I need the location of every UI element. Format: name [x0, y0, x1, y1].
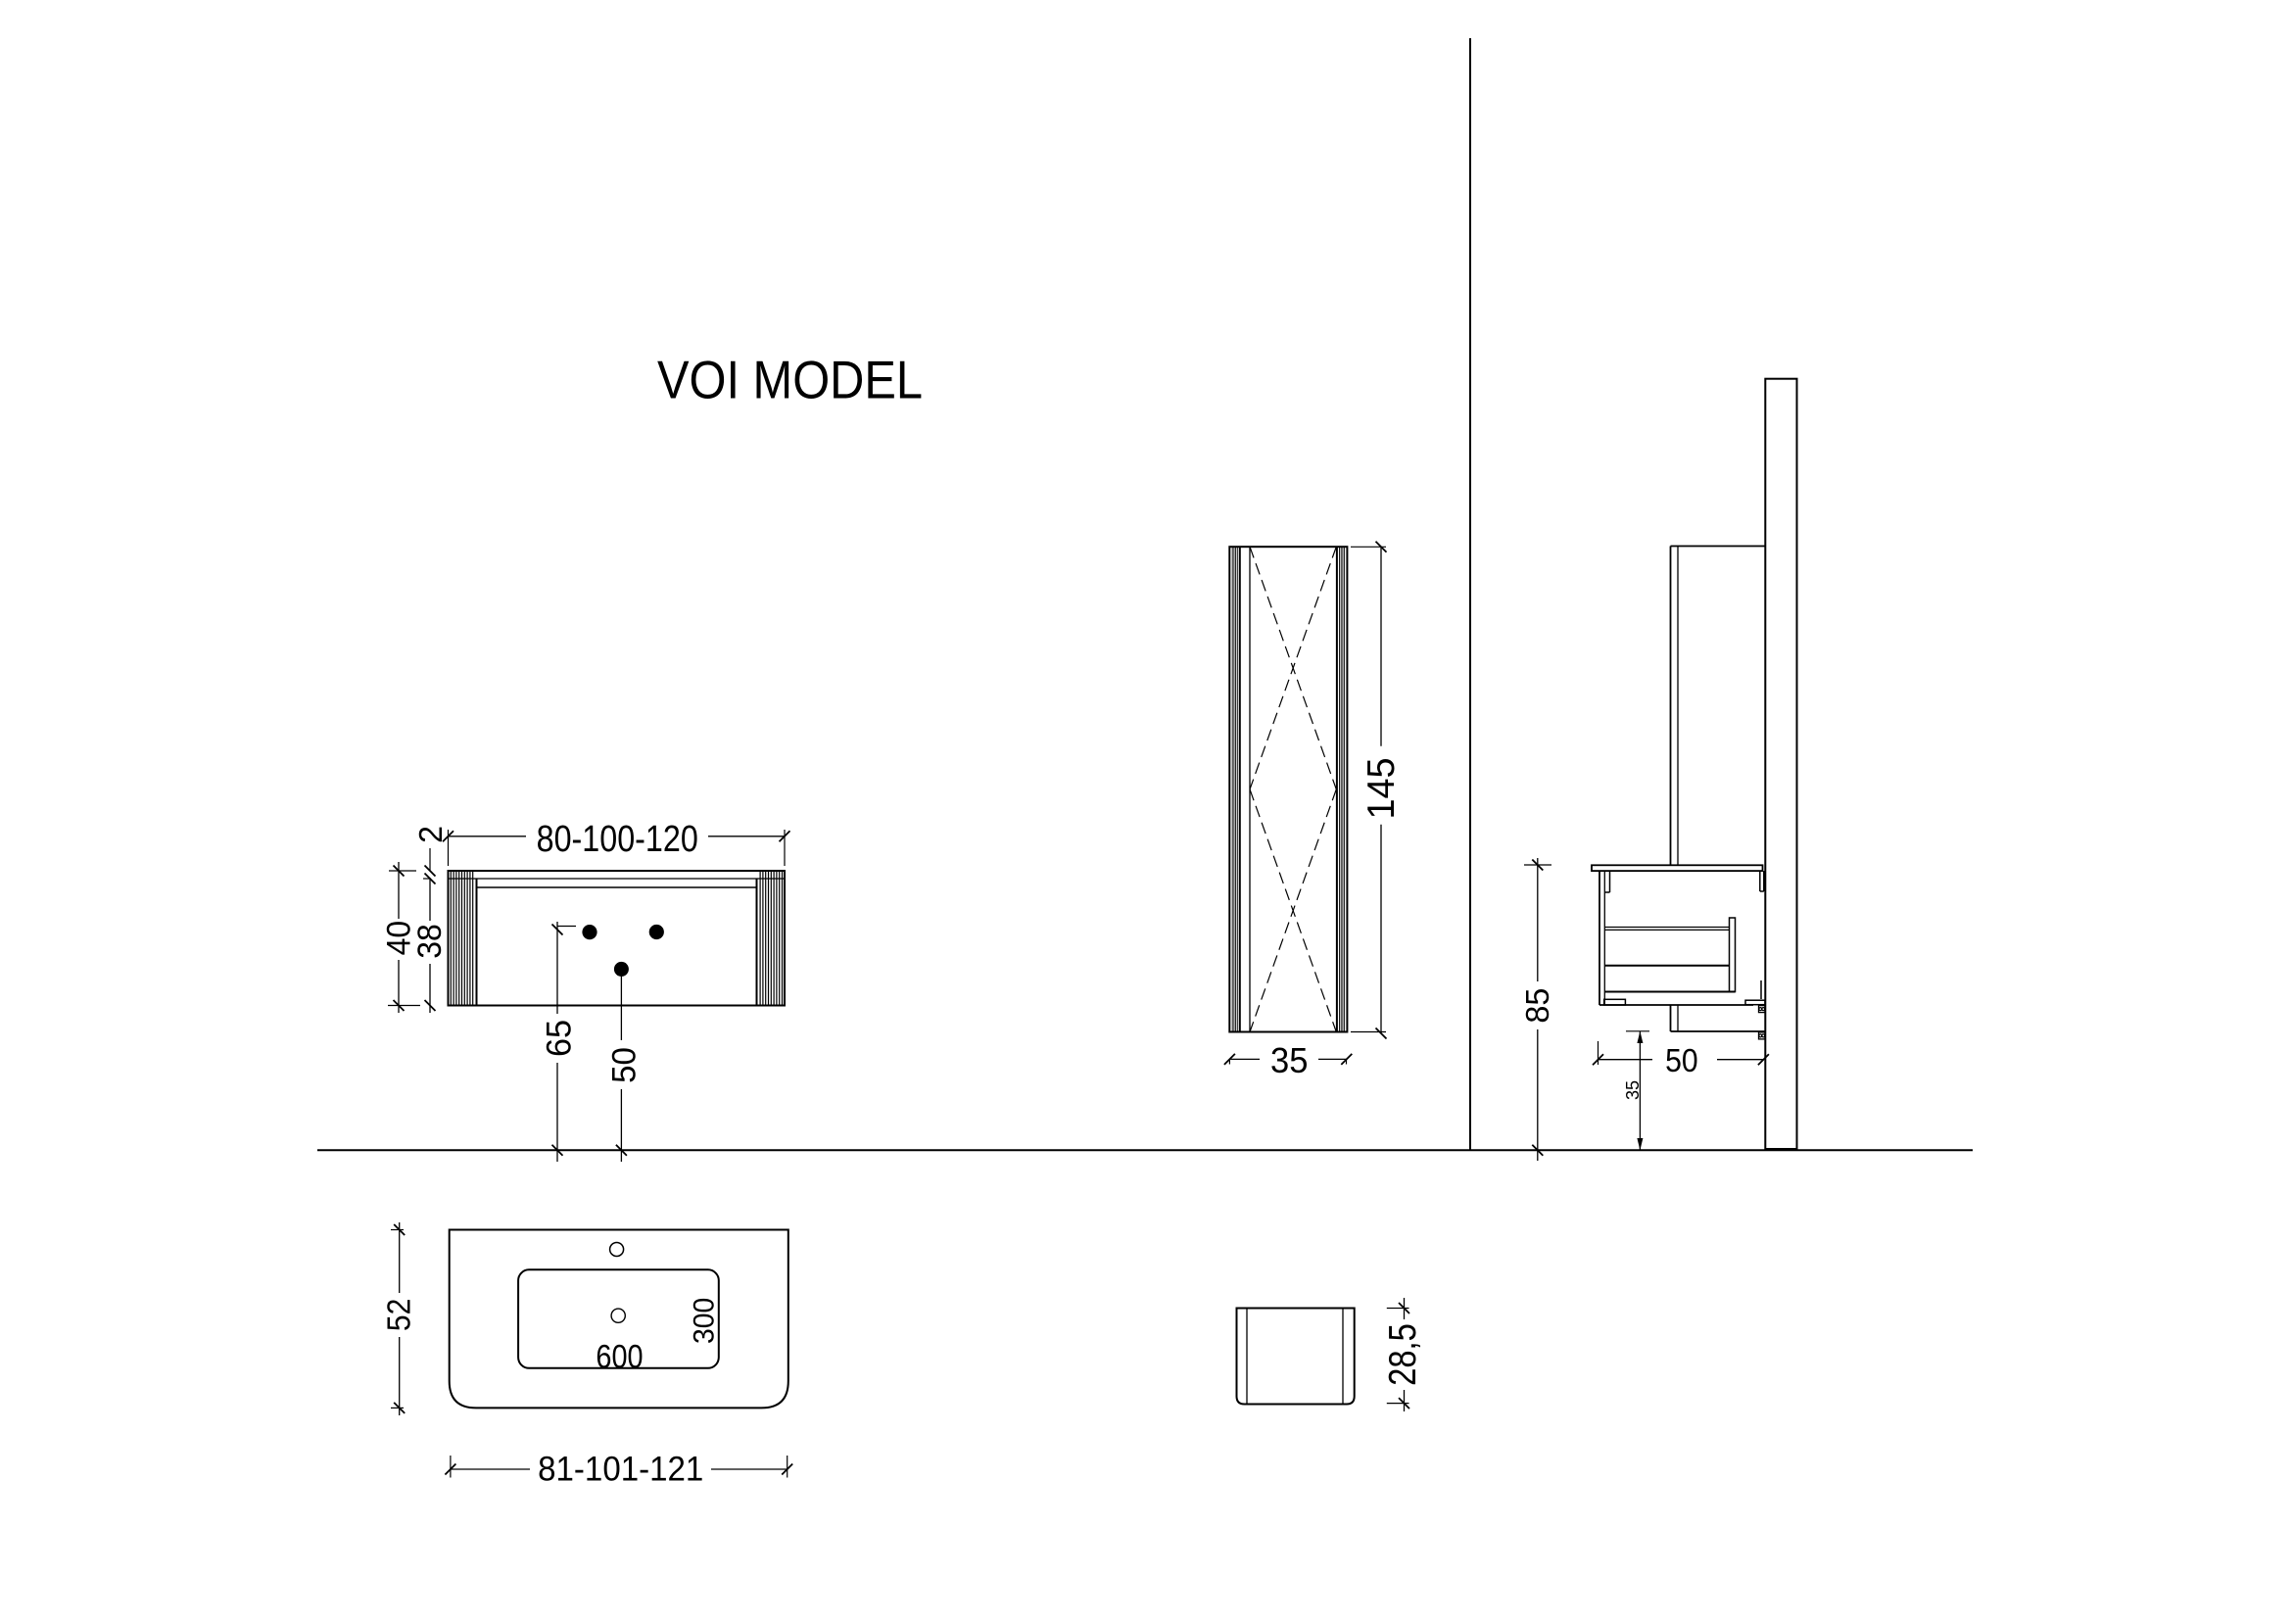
svg-text:38: 38 — [410, 924, 448, 959]
svg-text:28,5: 28,5 — [1380, 1323, 1423, 1386]
svg-text:600: 600 — [596, 1337, 643, 1375]
svg-text:VOI MODEL: VOI MODEL — [657, 351, 923, 410]
svg-text:50: 50 — [605, 1047, 644, 1083]
svg-text:81-101-121: 81-101-121 — [538, 1451, 703, 1489]
svg-text:65: 65 — [541, 1020, 579, 1057]
svg-text:2: 2 — [412, 826, 450, 843]
svg-text:300: 300 — [689, 1298, 721, 1344]
svg-text:145: 145 — [1360, 757, 1404, 819]
svg-text:52: 52 — [380, 1299, 417, 1332]
svg-text:80-100-120: 80-100-120 — [537, 819, 698, 860]
svg-text:85: 85 — [1519, 988, 1556, 1024]
svg-text:35: 35 — [1623, 1080, 1643, 1100]
svg-text:50: 50 — [1665, 1042, 1698, 1079]
svg-text:35: 35 — [1270, 1041, 1308, 1080]
